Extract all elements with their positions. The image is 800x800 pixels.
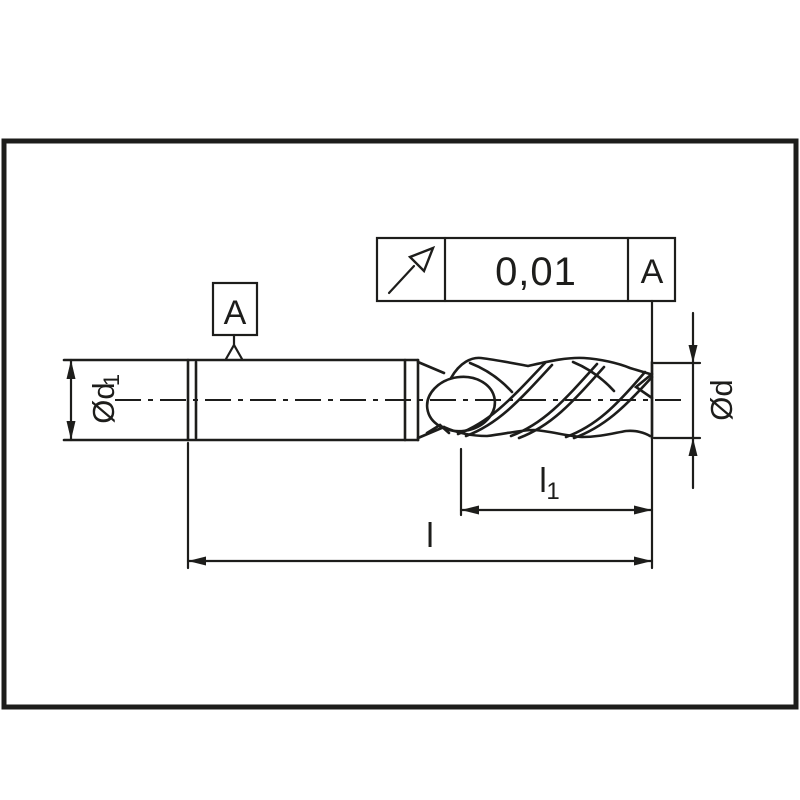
drawing-border-frame bbox=[4, 141, 796, 707]
shank-diameter-label: Ød bbox=[86, 382, 121, 423]
datum-feature-label: A bbox=[224, 294, 247, 332]
flute-length-subscript: 1 bbox=[546, 478, 559, 505]
tolerance-value: 0,01 bbox=[495, 250, 577, 294]
cutting-diameter-label: Ød bbox=[704, 379, 739, 420]
tolerance-datum-reference: A bbox=[641, 253, 664, 291]
technical-drawing-page: 0,01 A A bbox=[0, 0, 800, 800]
overall-length-label: l bbox=[426, 517, 434, 555]
shank-diameter-subscript: 1 bbox=[99, 374, 124, 386]
end-mill-drawing: 0,01 A A bbox=[0, 0, 800, 800]
